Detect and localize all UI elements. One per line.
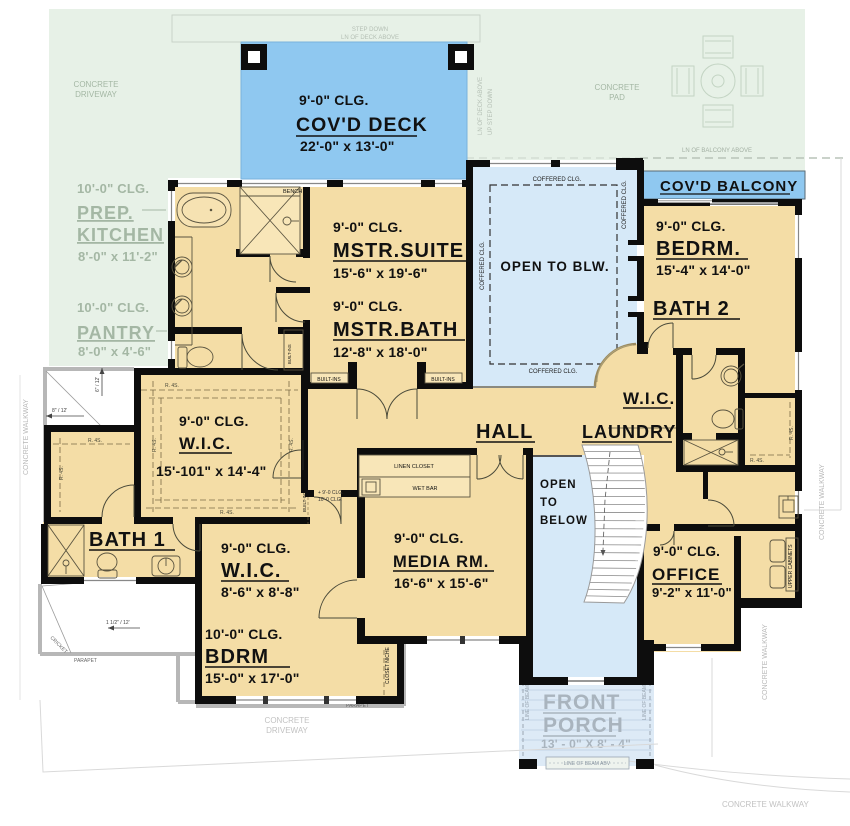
svg-text:1 1/2" / 12': 1 1/2" / 12' [106, 620, 130, 626]
svg-text:8'-0" x 4'-6": 8'-0" x 4'-6" [78, 344, 151, 359]
svg-text:LINE OF BEAM ABV: LINE OF BEAM ABV [564, 761, 611, 767]
svg-text:W.I.C.: W.I.C. [179, 434, 231, 453]
svg-text:8'-6" x 8'-8": 8'-6" x 8'-8" [221, 584, 300, 600]
svg-text:CONCRETE WALKWAY: CONCRETE WALKWAY [762, 624, 769, 700]
svg-text:PORCH: PORCH [543, 714, 624, 737]
svg-text:PREP.: PREP. [77, 203, 134, 223]
svg-text:CLOSET NICHE: CLOSET NICHE [385, 646, 391, 684]
svg-text:STEP DOWN: STEP DOWN [352, 27, 388, 33]
svg-text:R. 4S.: R. 4S. [152, 438, 158, 452]
svg-text:9'-0" CLG.: 9'-0" CLG. [333, 298, 403, 314]
svg-text:16'-6" x 15'-6": 16'-6" x 15'-6" [394, 575, 489, 591]
svg-text:KITCHEN: KITCHEN [77, 225, 164, 245]
svg-text:OPEN TO BLW.: OPEN TO BLW. [500, 259, 609, 274]
svg-text:R. 4S.: R. 4S. [789, 426, 795, 440]
svg-text:PAD: PAD [609, 93, 625, 102]
svg-text:W.I.C.: W.I.C. [623, 389, 675, 408]
svg-text:BUILT-INS: BUILT-INS [302, 491, 307, 512]
svg-text:OPEN: OPEN [540, 479, 577, 491]
svg-text:10'-0" CLG.: 10'-0" CLG. [77, 181, 149, 196]
svg-text:CONCRETE WALKWAY: CONCRETE WALKWAY [23, 399, 30, 475]
svg-text:HALL: HALL [476, 421, 533, 443]
svg-text:9'-0" CLG.: 9'-0" CLG. [333, 219, 403, 235]
svg-text:R. 4S.: R. 4S. [289, 438, 295, 452]
svg-text:CONCRETE WALKWAY: CONCRETE WALKWAY [819, 464, 826, 540]
svg-text:COV'D DECK: COV'D DECK [296, 114, 428, 136]
svg-text:LINEN CLOSET: LINEN CLOSET [394, 464, 434, 470]
svg-text:9'-0" CLG.: 9'-0" CLG. [299, 92, 369, 108]
svg-text:R. 4S.: R. 4S. [88, 438, 102, 444]
svg-text:CONCRETE: CONCRETE [74, 80, 119, 89]
svg-text:BATH 2: BATH 2 [653, 298, 730, 320]
svg-text:9'-2" x 11'-0": 9'-2" x 11'-0" [652, 585, 732, 600]
svg-text:CONCRETE: CONCRETE [595, 83, 640, 92]
svg-text:9'-0" CLG.: 9'-0" CLG. [656, 218, 726, 234]
svg-text:9'-0" CLG.: 9'-0" CLG. [221, 540, 291, 556]
svg-text:8" / 12': 8" / 12' [52, 408, 67, 414]
svg-text:COV'D BALCONY: COV'D BALCONY [660, 178, 798, 195]
svg-text:BUILT-INS: BUILT-INS [431, 377, 455, 383]
svg-text:15'-101" x 14'-4": 15'-101" x 14'-4" [156, 463, 267, 479]
svg-text:CONCRETE: CONCRETE [265, 716, 310, 725]
svg-text:COFFERED CLG.: COFFERED CLG. [533, 177, 582, 183]
svg-text:R. 4S.: R. 4S. [165, 383, 179, 389]
svg-text:6" / 12': 6" / 12' [95, 377, 101, 392]
svg-text:9'-0" CLG.: 9'-0" CLG. [653, 544, 720, 559]
svg-text:LN OF DECK ABOVE: LN OF DECK ABOVE [341, 35, 399, 41]
svg-text:BATH 1: BATH 1 [89, 529, 166, 551]
svg-text:10'-0 CLG.: 10'-0 CLG. [318, 497, 342, 503]
svg-text:15'-0" x 17'-0": 15'-0" x 17'-0" [205, 670, 300, 686]
svg-text:PARAPET: PARAPET [74, 658, 97, 664]
svg-text:BUILT-INS: BUILT-INS [287, 344, 292, 364]
svg-text:DRIVEWAY: DRIVEWAY [266, 726, 308, 735]
svg-text:15'-6" x 19'-6": 15'-6" x 19'-6" [333, 265, 428, 281]
svg-text:9'-0" CLG.: 9'-0" CLG. [394, 530, 464, 546]
svg-text:TO: TO [540, 497, 558, 509]
svg-text:10'-0" CLG.: 10'-0" CLG. [77, 300, 149, 315]
svg-text:COFFERED CLG.: COFFERED CLG. [529, 369, 578, 375]
svg-text:LAUNDRY: LAUNDRY [582, 422, 676, 442]
svg-text:10'-0" CLG.: 10'-0" CLG. [205, 626, 283, 642]
svg-text:UPPER CABINETS: UPPER CABINETS [788, 544, 794, 588]
svg-text:LN OF BALCONY ABOVE: LN OF BALCONY ABOVE [682, 148, 752, 154]
svg-text:15'-4" x 14'-0": 15'-4" x 14'-0" [656, 262, 751, 278]
svg-text:BUILT-INS: BUILT-INS [317, 377, 341, 383]
svg-text:OFFICE: OFFICE [652, 565, 720, 584]
svg-text:8'-0" x 11'-2": 8'-0" x 11'-2" [78, 249, 158, 264]
svg-text:BELOW: BELOW [540, 515, 588, 527]
svg-text:DRIVEWAY: DRIVEWAY [75, 90, 117, 99]
svg-text:MSTR.BATH: MSTR.BATH [333, 319, 458, 341]
svg-text:BENCH: BENCH [283, 189, 302, 195]
svg-text:COFFERED CLG.: COFFERED CLG. [622, 180, 628, 229]
svg-text:PANTRY: PANTRY [77, 323, 155, 343]
svg-text:FRONT: FRONT [543, 691, 620, 714]
svg-text:UP STEP DOWN: UP STEP DOWN [488, 89, 494, 135]
svg-text:MEDIA RM.: MEDIA RM. [393, 553, 489, 571]
svg-text:R. 4S.: R. 4S. [59, 466, 65, 480]
svg-text:9'-0" CLG.: 9'-0" CLG. [179, 413, 249, 429]
svg-text:22'-0" x 13'-0": 22'-0" x 13'-0" [300, 138, 395, 154]
svg-text:R. 4S.: R. 4S. [750, 458, 764, 464]
svg-text:+ 9'-0 CLG.: + 9'-0 CLG. [318, 490, 344, 496]
svg-text:MSTR.SUITE: MSTR.SUITE [333, 240, 464, 262]
svg-text:BDRM: BDRM [205, 646, 269, 668]
svg-text:LN OF DECK ABOVE: LN OF DECK ABOVE [478, 77, 484, 135]
svg-text:WET BAR: WET BAR [413, 486, 438, 492]
svg-text:BEDRM.: BEDRM. [656, 238, 741, 260]
svg-text:CONCRETE WALKWAY: CONCRETE WALKWAY [722, 800, 809, 809]
svg-text:COFFERED CLG.: COFFERED CLG. [480, 241, 486, 290]
svg-text:W.I.C.: W.I.C. [221, 560, 281, 582]
svg-text:R. 4S.: R. 4S. [220, 510, 234, 516]
svg-text:12'-8" x 18'-0": 12'-8" x 18'-0" [333, 344, 428, 360]
